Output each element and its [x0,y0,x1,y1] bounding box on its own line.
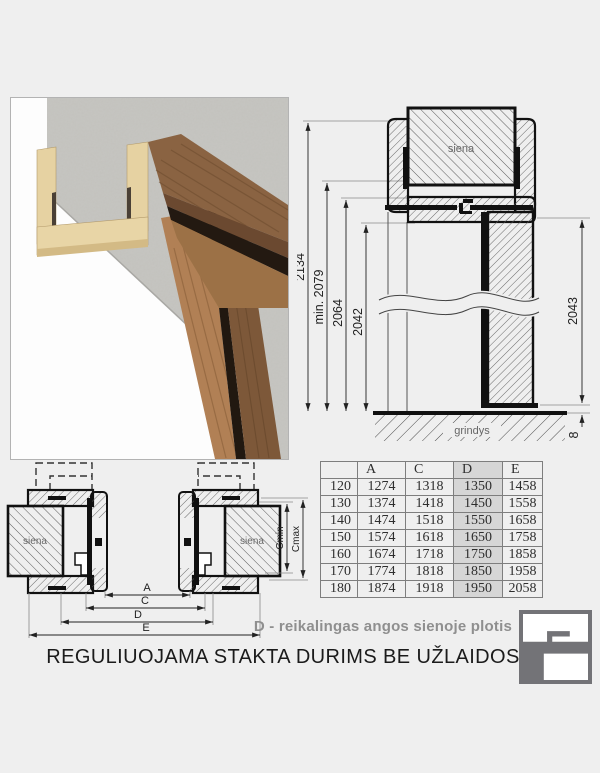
value-cell: 1350 [454,479,503,496]
floor-label: grindys [454,425,490,437]
table-row: 1501574161816501758 [321,530,543,547]
value-cell: 1418 [406,496,454,513]
frame-profile-logo-icon [523,614,588,680]
value-cell: 1758 [503,530,543,547]
dim-cmax: Cmax [291,526,302,552]
frame-corner-render [11,98,288,459]
value-cell: 1718 [406,547,454,564]
value-cell: 1274 [358,479,406,496]
table-row: 1301374141814501558 [321,496,543,513]
seal-bar [470,205,533,210]
row-label-cell: 170 [321,564,358,581]
page: 2134 min. 2079 2064 2042 siena grindys [0,0,600,773]
value-cell: 1750 [454,547,503,564]
row-label-cell: 130 [321,496,358,513]
seal-bar [195,498,199,585]
value-cell: 1650 [454,530,503,547]
table-row: 1701774181818501958 [321,564,543,581]
seal-bar [87,498,91,585]
value-cell: 1574 [358,530,406,547]
value-cell: 1858 [503,547,543,564]
dim-min-2079: min. 2079 [312,270,326,325]
value-cell: 1374 [358,496,406,513]
header-c: C [406,462,454,479]
value-cell: 1450 [454,496,503,513]
header-empty [321,462,358,479]
header-a: A [358,462,406,479]
dim-8: 8 [567,431,581,438]
value-cell: 1474 [358,513,406,530]
value-cell: 1850 [454,564,503,581]
value-cell: 1658 [503,513,543,530]
value-cell: 2058 [503,581,543,598]
page-title: REGULIUOJAMA STAKTA DURIMS BE UŽLAIDOS [13,646,553,669]
value-cell: 1958 [503,564,543,581]
row-label-cell: 160 [321,547,358,564]
dim-2064: 2064 [331,299,345,327]
dim-2134: 2134 [297,253,307,281]
dim-2042: 2042 [351,308,365,336]
table-body: 1201274131813501458130137414181450155814… [321,479,543,598]
header-d: D [454,462,503,479]
value-cell: 1674 [358,547,406,564]
dim-cmin: Cmin [275,526,286,549]
row-label-cell: 180 [321,581,358,598]
value-cell: 1874 [358,581,406,598]
value-cell: 1558 [503,496,543,513]
note-d-definition: D - reikalingas angos sienoje plotis [240,618,512,635]
section-drawing: siena siena A C D E [3,458,313,643]
brand-logo [519,610,592,684]
row-label-cell: 140 [321,513,358,530]
value-cell: 1774 [358,564,406,581]
value-cell: 1458 [503,479,543,496]
wall-label-right: siena [240,536,264,547]
dim-d: D [134,609,142,621]
table-row: 1801874191819502058 [321,581,543,598]
dim-c: C [141,595,149,607]
row-label-cell: 120 [321,479,358,496]
wall-label-left: siena [23,536,47,547]
frame-corner-photo [10,97,289,460]
elevation-drawing: 2134 min. 2079 2064 2042 siena grindys [297,95,597,465]
value-cell: 1318 [406,479,454,496]
value-cell: 1918 [406,581,454,598]
dim-a: A [143,582,151,594]
table-row: 1401474151815501658 [321,513,543,530]
header-e: E [503,462,543,479]
dimensions-table: A C D E 12012741318135014581301374141814… [320,461,543,598]
row-label-cell: 150 [321,530,358,547]
value-cell: 1818 [406,564,454,581]
dim-2043: 2043 [566,297,580,325]
door-bottom [481,403,538,408]
value-cell: 1618 [406,530,454,547]
table-row: 1601674171817501858 [321,547,543,564]
value-cell: 1950 [454,581,503,598]
value-cell: 1518 [406,513,454,530]
wall-label: siena [448,143,475,155]
table-row: 1201274131813501458 [321,479,543,496]
table-header-row: A C D E [321,462,543,479]
dim-e: E [142,622,149,634]
seal-bar [385,205,457,210]
value-cell: 1550 [454,513,503,530]
